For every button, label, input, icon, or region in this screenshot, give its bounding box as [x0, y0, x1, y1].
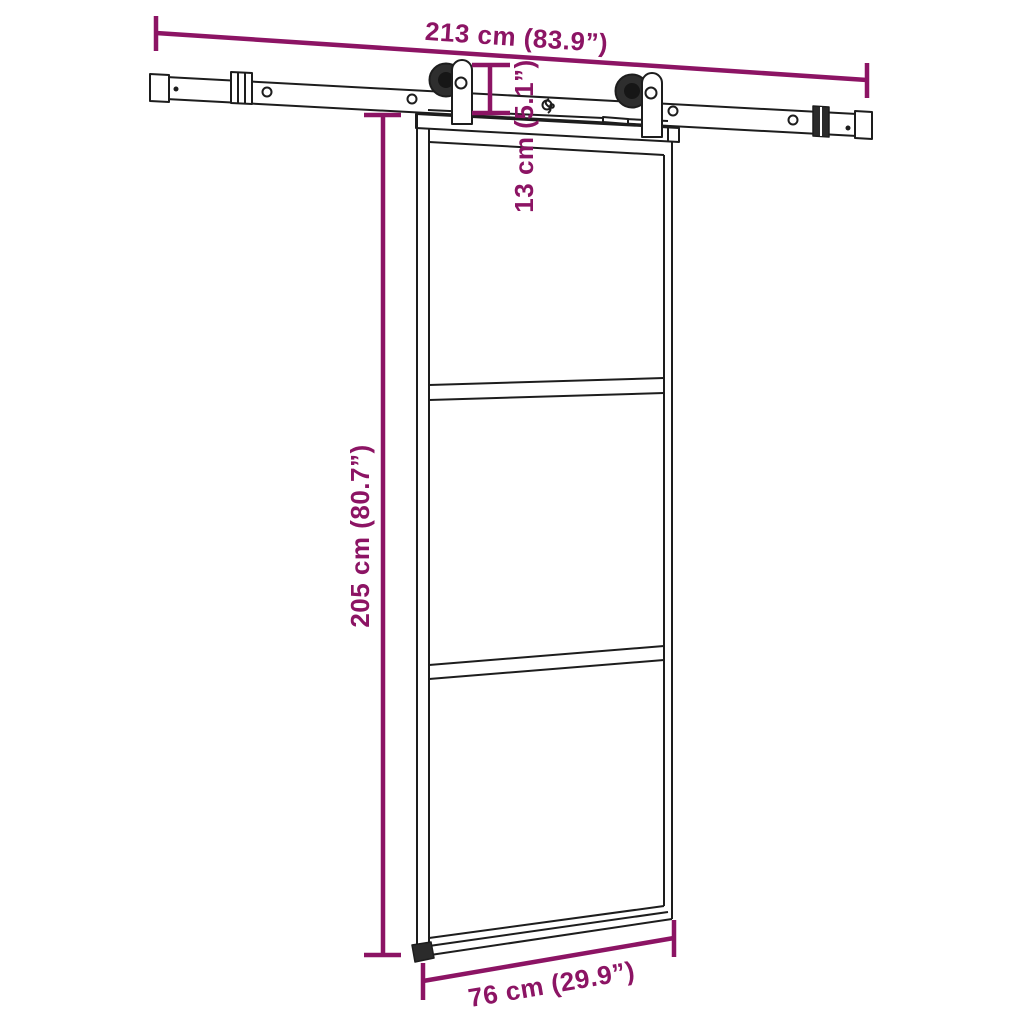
diagram-canvas: 213 cm (83.9”) 13 cm (5.1”) 205 cm (80.7… — [0, 0, 1024, 1024]
dimension-label-door-height: 205 cm (80.7”) — [345, 444, 375, 627]
divider-bar-1-top — [429, 378, 664, 385]
end-cap-dot — [174, 87, 179, 92]
dimension-label-hanger-drop: 13 cm (5.1”) — [509, 59, 539, 212]
floor-guide-foot — [412, 942, 434, 962]
rail-right-end-cap — [855, 111, 872, 139]
hanger-bolt-hole — [456, 78, 467, 89]
end-cap-dot — [846, 126, 851, 131]
rail-screw-hole — [263, 88, 272, 97]
rail-left-stopper — [231, 72, 252, 104]
rail-screw-hole — [789, 116, 798, 125]
divider-bar-1-bottom — [429, 393, 664, 400]
glass-bottom-edge — [429, 906, 664, 938]
rail-screw-hole — [408, 95, 417, 104]
hanger-strap — [452, 60, 472, 124]
dimension-label-door-width: 76 cm (29.9”) — [466, 955, 637, 1013]
hanger-bolt-hole — [646, 88, 657, 99]
glass-top-edge — [429, 142, 664, 155]
hanger-strap — [642, 73, 662, 137]
sliding-door — [412, 110, 679, 962]
roller-wheel-hub — [624, 83, 640, 99]
product-dimension-diagram: 213 cm (83.9”) 13 cm (5.1”) 205 cm (80.7… — [0, 0, 1024, 1024]
dimension-door-height: 205 cm (80.7”) — [345, 115, 401, 955]
dimension-annotations: 213 cm (83.9”) 13 cm (5.1”) 205 cm (80.7… — [156, 16, 867, 1013]
bottom-rail-inner-edge — [429, 912, 668, 946]
dimension-hanger-drop: 13 cm (5.1”) — [472, 59, 539, 212]
header-connector-plate — [603, 117, 628, 124]
door-bottom-edge — [417, 919, 672, 957]
rail-screw-hole — [669, 107, 678, 116]
rail-left-end-cap — [150, 74, 169, 102]
